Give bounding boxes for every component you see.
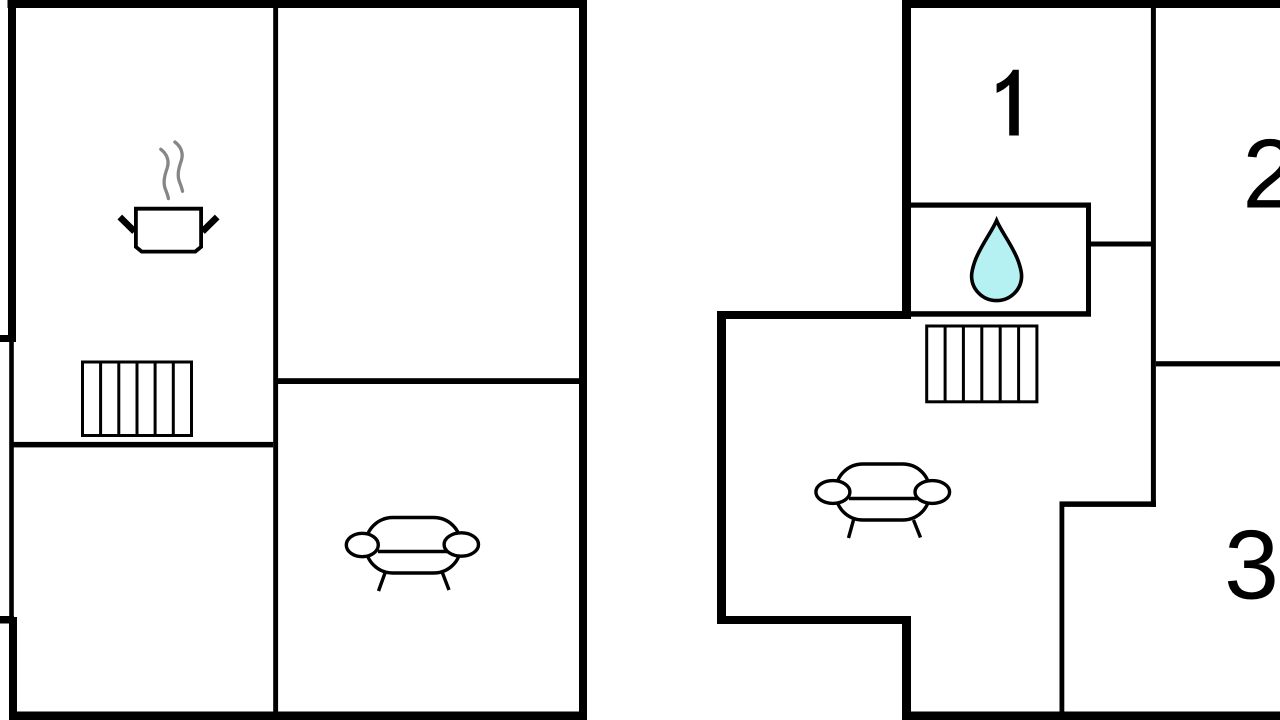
svg-text:3: 3 bbox=[1224, 510, 1279, 620]
svg-text:2: 2 bbox=[1242, 119, 1280, 229]
